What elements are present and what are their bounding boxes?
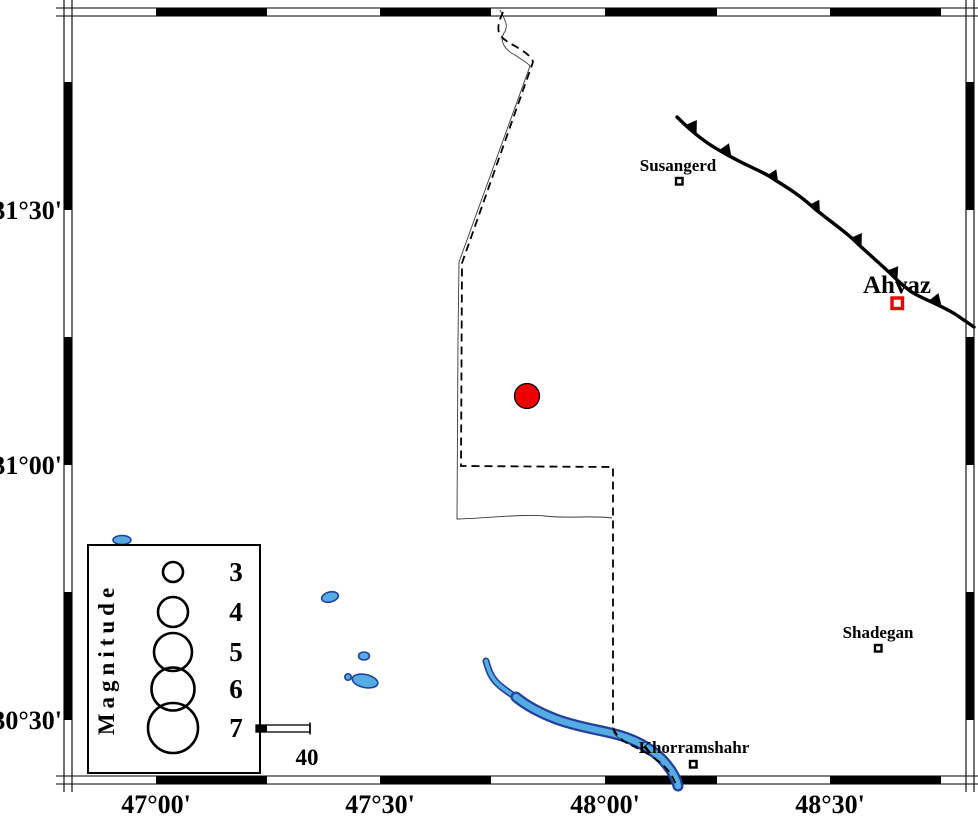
y-tick-label: 31°30' <box>0 196 62 225</box>
city-marker-ahvaz <box>892 298 903 309</box>
city-marker-susangerd <box>676 178 683 185</box>
lake <box>113 536 131 545</box>
epicenter-circle <box>515 384 540 409</box>
y-tick-label: 30°30' <box>0 706 62 735</box>
legend-title: Magnitude <box>94 583 119 735</box>
legend-value-m6: 6 <box>229 674 243 704</box>
magnitude-legend: Magnitude 3 4 5 6 7 <box>88 545 260 773</box>
scale-bar-label: 40 <box>296 745 319 770</box>
city-label-shadegan: Shadegan <box>843 623 914 642</box>
map-figure: Susangerd Ahvaz Shadegan Khorramshahr Ma… <box>0 0 978 819</box>
x-tick-label: 47°30' <box>345 790 415 819</box>
legend-value-m5: 5 <box>229 637 243 667</box>
x-tick-label: 47°00' <box>121 790 191 819</box>
x-tick-label: 48°30' <box>795 790 865 819</box>
city-label-ahvaz: Ahvaz <box>863 272 931 299</box>
city-label-susangerd: Susangerd <box>640 156 717 175</box>
city-marker-khorramshahr <box>690 761 697 768</box>
legend-value-m7: 7 <box>229 713 243 743</box>
lake <box>345 674 351 680</box>
legend-value-m3: 3 <box>229 557 243 587</box>
y-tick-label: 31°00' <box>0 451 62 480</box>
city-marker-shadegan <box>875 645 882 652</box>
x-tick-label: 48°00' <box>570 790 640 819</box>
lake <box>359 652 370 660</box>
map-svg: Susangerd Ahvaz Shadegan Khorramshahr Ma… <box>0 0 978 819</box>
city-label-khorramshahr: Khorramshahr <box>639 738 750 757</box>
legend-value-m4: 4 <box>229 597 243 627</box>
